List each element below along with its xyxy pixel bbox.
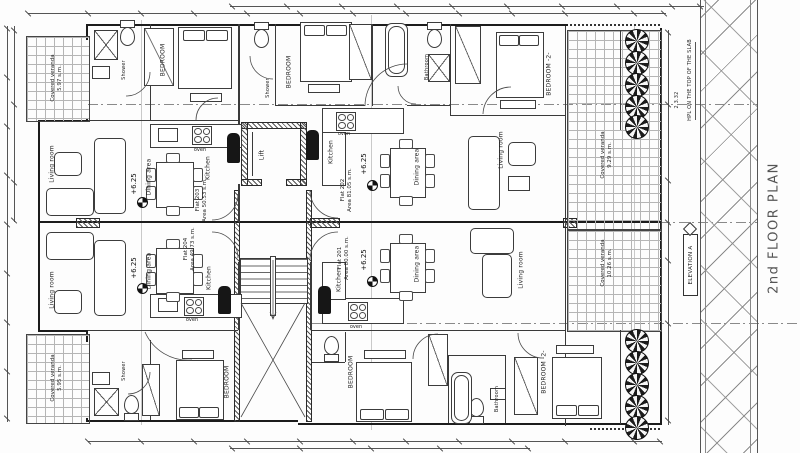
- planter-flower-icon: [625, 115, 649, 139]
- flat-202-label: Flat 202 Area 81.05 s.m.: [340, 168, 354, 212]
- flat-number: Flat 203: [195, 189, 201, 211]
- pillow: [183, 30, 205, 41]
- flat-number: Flat 202: [340, 179, 346, 201]
- planter-flower-icon: [625, 29, 649, 53]
- chair: [425, 249, 435, 263]
- stove: [336, 112, 356, 131]
- lift-shaft-wall: [241, 122, 248, 186]
- chair: [425, 269, 435, 283]
- sofa: [46, 188, 94, 216]
- veranda-name: Covered veranda: [600, 131, 606, 178]
- chair: [193, 272, 203, 286]
- kitchen-label: Kitchen: [328, 140, 335, 164]
- bed-bench: [190, 93, 222, 102]
- living-room-label: Living room: [518, 251, 525, 288]
- chair: [380, 249, 390, 263]
- oven-label: oven: [338, 131, 350, 137]
- interior-wall: [448, 355, 505, 356]
- toilet-bowl: [324, 336, 339, 355]
- pillow: [199, 407, 219, 418]
- dimension-line: [230, 448, 530, 449]
- slab-note-leader: [695, 42, 696, 120]
- pillow: [179, 407, 199, 418]
- toilet-bowl: [120, 27, 135, 46]
- chair: [425, 154, 435, 168]
- kitchen-counter: [322, 108, 404, 134]
- wall-pier: [310, 218, 340, 228]
- fridge: [306, 130, 319, 160]
- bedroom-label: BEDROOM: [224, 366, 231, 399]
- planter-strip-wall: [620, 30, 621, 130]
- elevation-a-label: ELEVATION A: [683, 234, 698, 296]
- stove: [192, 126, 212, 145]
- pillow: [556, 405, 577, 416]
- pillow: [304, 25, 325, 36]
- bathroom-label: Bathroom: [494, 386, 500, 412]
- veranda-label-bl: Covered veranda 5.95 s.m.: [50, 354, 64, 401]
- planter-flower-icon: [625, 73, 649, 97]
- pillow: [385, 409, 409, 420]
- kitchen-label: Kitchen: [206, 266, 213, 290]
- elevation-a-text: ELEVATION A: [688, 246, 694, 285]
- veranda-label-tl: Covered veranda 5.97 s.m.: [50, 54, 64, 101]
- basin: [92, 66, 110, 79]
- wardrobe: [142, 364, 160, 416]
- interior-wall: [238, 24, 240, 124]
- level-marker-text: +6.25: [130, 173, 138, 194]
- kitchen-sink: [158, 128, 178, 142]
- fridge: [218, 286, 231, 314]
- shower-label: Shower: [121, 361, 127, 381]
- interior-wall: [310, 262, 312, 330]
- dining-table: [390, 148, 426, 198]
- chair: [425, 174, 435, 188]
- sofa: [468, 136, 500, 210]
- sofa: [482, 254, 512, 298]
- bed-bench: [364, 350, 406, 359]
- flat-203-label: Flat 203 Area 50.53 s.m.: [195, 178, 209, 222]
- sofa: [94, 240, 126, 316]
- chair: [399, 139, 413, 149]
- dining-area-label: Dining area: [414, 246, 421, 283]
- pillow: [578, 405, 599, 416]
- veranda-area: 5.97 s.m.: [57, 65, 63, 91]
- flat-number: Flat 201: [337, 247, 343, 269]
- interior-wall: [312, 330, 565, 331]
- lift-label: Lift: [259, 150, 266, 160]
- chair: [166, 239, 180, 249]
- interior-wall: [312, 362, 345, 363]
- living-room-label: Living room: [49, 271, 56, 308]
- lift-shaft-wall: [241, 179, 262, 186]
- level-marker-icon: [137, 283, 148, 294]
- bed-bench: [182, 350, 214, 359]
- bedroom-label: BEDROOM: [286, 56, 293, 89]
- planter-strip-wall: [620, 330, 621, 424]
- shower-label: Shower: [265, 78, 271, 98]
- bathroom-label: Bathroom: [424, 54, 430, 80]
- dining-area-label: Dining area: [414, 149, 421, 186]
- veranda-name: Covered veranda: [50, 54, 56, 101]
- bathtub: [451, 372, 472, 424]
- armchair: [54, 152, 82, 176]
- bedroom-label: BEDROOM: [348, 356, 355, 389]
- toilet-tank: [124, 413, 139, 421]
- flat-number: Flat 204: [183, 238, 189, 260]
- interior-wall: [238, 184, 240, 222]
- coffee-table: [508, 176, 530, 191]
- roof-band-line: [705, 0, 706, 453]
- level-marker-icon: [367, 180, 378, 191]
- armchair: [508, 142, 536, 166]
- toilet-bowl: [254, 29, 269, 48]
- shower-tray: [94, 30, 118, 60]
- wall-pier: [76, 218, 100, 228]
- planter-flower-icon: [625, 329, 649, 353]
- flat-area: Area 80.00 s.m.: [344, 236, 350, 280]
- pillow: [519, 35, 539, 46]
- interior-wall: [448, 355, 449, 423]
- oven-label: oven: [350, 324, 362, 330]
- bedroom-label: BEDROOM -2-: [546, 52, 553, 96]
- bed-bench: [500, 100, 536, 109]
- wardrobe: [514, 357, 538, 415]
- sofa: [470, 228, 514, 254]
- bathtub: [385, 23, 408, 77]
- dining-table: [390, 243, 426, 293]
- veranda-label-br: Covered veranda 10.26 s.m.: [600, 239, 614, 286]
- veranda-name: Covered veranda: [50, 354, 56, 401]
- bed-bench: [556, 345, 594, 354]
- interior-wall: [372, 24, 373, 106]
- veranda-area: 10.26 s.m.: [607, 248, 613, 277]
- oven-label: oven: [194, 147, 206, 153]
- lift-cab: [252, 132, 253, 176]
- slab-note: HPL ON THE TOP OF THE SLAB: [687, 39, 693, 121]
- sofa: [46, 232, 94, 260]
- level-marker-icon: [137, 197, 148, 208]
- lift-shaft-wall: [286, 179, 307, 186]
- toilet-bowl: [427, 29, 442, 48]
- chair: [166, 153, 180, 163]
- roof-band-line: [750, 0, 751, 453]
- stove: [348, 302, 368, 321]
- kitchen-label: Kitchen: [205, 156, 212, 180]
- interior-wall: [450, 115, 566, 116]
- bedroom-label: BEDROOM: [160, 44, 167, 77]
- flat-area: Area 49.73 s.m.: [190, 227, 196, 271]
- oven-label: oven: [186, 317, 198, 323]
- planter-flower-icon: [625, 373, 649, 397]
- pillow: [499, 35, 519, 46]
- veranda-area: 9.29 s.m.: [607, 142, 613, 168]
- slab-note-dim: 2 3.32: [674, 91, 680, 108]
- shower-tray: [428, 54, 450, 82]
- pillow: [326, 25, 347, 36]
- chair: [399, 196, 413, 206]
- flat-area: Area 81.05 s.m.: [347, 168, 353, 212]
- lift-shaft-wall: [241, 122, 307, 129]
- interior-wall: [450, 24, 451, 116]
- pillow: [360, 409, 384, 420]
- toilet-bowl: [124, 395, 139, 414]
- level-marker-icon: [367, 276, 378, 287]
- wardrobe: [349, 24, 372, 80]
- floor-plan-canvas: BEDROOM BEDROOM BEDROOM -2- BEDROOM BEDR…: [0, 0, 800, 453]
- stair-railing: [270, 256, 276, 316]
- flat-area: Area 50.53 s.m.: [202, 178, 208, 222]
- interior-wall: [275, 105, 365, 106]
- chair: [399, 234, 413, 244]
- exterior-wall: [86, 420, 298, 422]
- shower-label: Shower: [121, 60, 127, 80]
- veranda-bottom-right: [567, 230, 662, 332]
- veranda-railing: [570, 24, 660, 26]
- chair: [380, 269, 390, 283]
- living-room-label: Living room: [498, 131, 505, 168]
- sofa: [94, 138, 126, 214]
- interior-wall: [88, 330, 238, 331]
- planter-flower-icon: [625, 416, 649, 440]
- level-marker-text: +6.25: [360, 153, 368, 174]
- bed-bench: [308, 84, 340, 93]
- planter-flower-icon: [625, 51, 649, 75]
- chair: [166, 206, 180, 216]
- flat-201-label: Flat 201 Area 80.00 s.m.: [337, 236, 351, 280]
- basin: [92, 372, 110, 385]
- fridge: [227, 133, 240, 163]
- chair: [399, 291, 413, 301]
- pillow: [206, 30, 228, 41]
- chair: [166, 292, 180, 302]
- interior-wall: [407, 105, 451, 106]
- interior-wall: [88, 120, 238, 121]
- chair: [380, 174, 390, 188]
- dining-area-label: Dining area: [146, 159, 153, 196]
- dimension-line: [230, 6, 704, 7]
- dining-table: [156, 162, 194, 208]
- wardrobe: [428, 334, 448, 386]
- dimension-line: [88, 441, 662, 442]
- veranda-label-tr: Covered veranda 9.29 s.m.: [600, 131, 614, 178]
- stove: [184, 297, 204, 316]
- dimension-line: [14, 26, 15, 222]
- wardrobe: [455, 26, 481, 84]
- level-marker-text: +6.25: [360, 249, 368, 270]
- fridge: [318, 286, 331, 314]
- veranda-name: Covered veranda: [600, 239, 606, 286]
- exterior-wall: [38, 120, 40, 332]
- shower-tray: [94, 388, 119, 416]
- exterior-wall: [38, 330, 88, 332]
- planter-flower-icon: [625, 351, 649, 375]
- veranda-area: 5.95 s.m.: [57, 365, 63, 391]
- sheet-title: 2nd FLOOR PLAN: [767, 162, 782, 294]
- level-marker-text: +6.25: [130, 257, 138, 278]
- chair: [380, 154, 390, 168]
- living-room-label: Living room: [49, 145, 56, 182]
- toilet-tank: [324, 354, 339, 362]
- dimension-line: [28, 13, 666, 14]
- dimension-line: [668, 30, 669, 425]
- bedroom-label: BEDROOM -2-: [541, 350, 548, 394]
- interior-wall: [275, 24, 276, 106]
- armchair: [54, 290, 82, 314]
- flat-204-label: Flat 204 Area 49.73 s.m.: [183, 227, 197, 271]
- interior-wall: [345, 332, 346, 362]
